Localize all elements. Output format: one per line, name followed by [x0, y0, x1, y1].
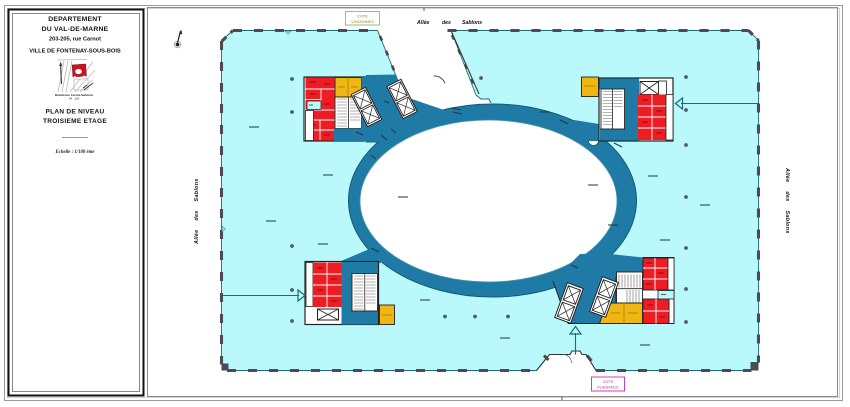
svg-text:Allée des Sablons: Allée des Sablons — [194, 178, 200, 245]
svg-text:VILLE DE FONTENAY-SOUS-BOIS: VILLE DE FONTENAY-SOUS-BOIS — [29, 49, 121, 55]
svg-text:DEPARTEMENT: DEPARTEMENT — [48, 16, 102, 23]
svg-text:Echelle : 1/100 ème: Echelle : 1/100 ème — [54, 150, 95, 155]
svg-text:VINCENNES: VINCENNES — [351, 19, 374, 24]
svg-text:Allée des Sablons: Allée des Sablons — [784, 167, 790, 234]
svg-text:94 - 120: 94 - 120 — [69, 97, 80, 101]
svg-text:PLAISANCE: PLAISANCE — [597, 384, 619, 389]
svg-text:PLAN DE NIVEAU: PLAN DE NIVEAU — [45, 109, 104, 116]
svg-text:COTE: COTE — [603, 379, 614, 384]
svg-text:TROISIEME ETAGE: TROISIEME ETAGE — [43, 118, 107, 125]
svg-text:203-205, rue Carnot: 203-205, rue Carnot — [49, 37, 101, 43]
svg-text:Allée: Allée — [416, 20, 430, 26]
svg-text:COTE: COTE — [357, 14, 368, 19]
svg-text:DU VAL-DE-MARNE: DU VAL-DE-MARNE — [42, 26, 109, 33]
svg-text:des: des — [442, 20, 451, 26]
svg-text:Sablons: Sablons — [462, 20, 482, 26]
